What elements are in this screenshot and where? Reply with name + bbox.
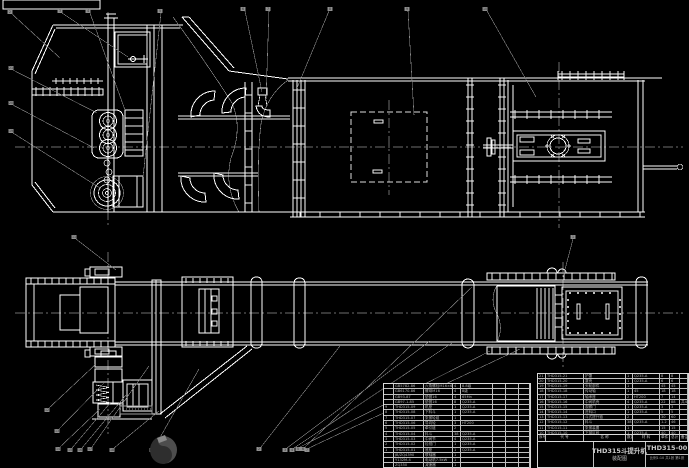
svg-text:5: 5 xyxy=(159,9,161,13)
number-area: THD315-00 比例1:10 共1张 第1张 xyxy=(646,442,688,467)
head-shaft xyxy=(550,138,566,154)
part-balloon: 19 xyxy=(9,129,14,133)
casing-flange-rings xyxy=(251,277,647,348)
svg-text:5: 5 xyxy=(297,447,299,451)
title-area: THD315斗提升机 装配图 xyxy=(594,442,646,467)
svg-text:7: 7 xyxy=(306,448,308,452)
svg-text:4: 4 xyxy=(87,9,89,13)
signature-cell xyxy=(574,459,593,467)
part-balloon: 7 xyxy=(266,7,271,11)
drawing-subtitle: 装配图 xyxy=(612,455,627,462)
svg-text:7: 7 xyxy=(267,7,269,11)
elevation-view xyxy=(3,0,683,228)
signature-cell xyxy=(556,459,574,467)
part-balloon: 12 xyxy=(45,408,50,412)
svg-text:11: 11 xyxy=(72,235,76,239)
signature-cell xyxy=(574,450,593,458)
svg-text:16: 16 xyxy=(78,448,82,452)
part-balloon: 5 xyxy=(158,9,163,13)
svg-text:14: 14 xyxy=(56,447,60,451)
svg-text:2: 2 xyxy=(258,447,260,451)
svg-text:4: 4 xyxy=(291,448,293,452)
svg-text:13: 13 xyxy=(55,429,59,433)
support-frame xyxy=(152,280,252,418)
sheet-border-corner xyxy=(3,0,100,9)
svg-text:3: 3 xyxy=(59,9,61,13)
conveyor-casing xyxy=(53,78,662,217)
part-balloon: 5 xyxy=(296,447,301,451)
boot-plan xyxy=(26,267,122,357)
bucket-bolt xyxy=(258,88,267,95)
part-balloon: 3 xyxy=(283,448,288,452)
part-balloon: 9 xyxy=(405,7,410,11)
tensioner-assembly xyxy=(91,110,144,210)
signature-cell xyxy=(556,442,574,450)
part-balloon: 14 xyxy=(56,447,61,451)
part-balloon: 7 xyxy=(305,448,310,452)
svg-text:18: 18 xyxy=(110,448,114,452)
casing-curve-left xyxy=(173,17,239,212)
takeup-platform xyxy=(115,32,150,67)
parts-table-right: 21THD315-21护罩1Q235-A88 20THD315-20罩壳1Q23… xyxy=(537,373,689,435)
svg-text:17: 17 xyxy=(88,447,92,451)
signature-cell xyxy=(556,450,574,458)
part-balloon: 1 xyxy=(571,235,576,239)
signature-grid: 设计制图审核 xyxy=(538,442,594,467)
inspection-box-plan xyxy=(182,277,233,347)
head-section xyxy=(483,71,683,212)
tension-rod xyxy=(643,166,677,169)
spring-coupling xyxy=(96,385,109,403)
door-handle xyxy=(373,170,382,173)
drive-unit xyxy=(92,351,152,419)
part-balloon: 13 xyxy=(55,429,60,433)
drawing-number: THD315-00 xyxy=(646,442,688,455)
part-balloon: 21 xyxy=(9,66,14,70)
part-balloon: 2 xyxy=(257,447,262,451)
part-balloon: 15 xyxy=(68,448,73,452)
svg-text:3: 3 xyxy=(284,448,286,452)
part-balloon: 4 xyxy=(290,448,295,452)
cad-drawing-canvas: 2 3 4 5 6 7 8 9 10 1 21 20 19 11 12 13 1… xyxy=(0,0,689,468)
part-balloon: 3 xyxy=(58,9,63,13)
door-handle xyxy=(374,120,383,123)
svg-text:19: 19 xyxy=(9,129,13,133)
part-balloon: 11 xyxy=(72,235,77,239)
svg-text:12: 12 xyxy=(45,408,49,412)
svg-text:2: 2 xyxy=(9,10,11,14)
signature-cell: 审核 xyxy=(538,459,556,467)
svg-text:6: 6 xyxy=(302,447,304,451)
buckets xyxy=(178,88,290,202)
svg-text:20: 20 xyxy=(9,101,13,105)
signature-cell: 制图 xyxy=(538,450,556,458)
part-balloon: 8 xyxy=(328,7,333,11)
part-balloon: 16 xyxy=(78,448,83,452)
svg-text:15: 15 xyxy=(68,448,72,452)
part-balloon: 18 xyxy=(110,448,115,452)
signature-cell xyxy=(574,442,593,450)
drawing-info: 比例1:10 共1张 第1张 xyxy=(646,455,688,461)
svg-text:6: 6 xyxy=(242,7,244,11)
svg-text:10: 10 xyxy=(483,7,487,11)
part-balloon: 20 xyxy=(9,101,14,105)
signature-cell: 设计 xyxy=(538,442,556,450)
svg-text:1: 1 xyxy=(572,235,574,239)
part-balloon: 4 xyxy=(86,9,91,13)
title-block: 设计制图审核 THD315斗提升机 装配图 THD315-00 比例1:10 共… xyxy=(537,441,689,468)
casing-curve-right xyxy=(258,80,288,212)
part-balloon: 6 xyxy=(241,7,246,11)
svg-text:21: 21 xyxy=(9,66,13,70)
parts-table-left: GB5782-86六角螺栓M16×6048.8级 GB6170-86螺母M164… xyxy=(383,383,531,468)
svg-text:8: 8 xyxy=(329,7,331,11)
drawing-title: THD315斗提升机 xyxy=(592,447,647,455)
boot-wheel xyxy=(94,180,120,206)
watermark-logo xyxy=(150,435,177,464)
part-balloon: 10 xyxy=(483,7,488,11)
part-balloon: 17 xyxy=(88,447,93,451)
svg-text:9: 9 xyxy=(406,7,408,11)
part-balloon: 2 xyxy=(8,10,13,14)
